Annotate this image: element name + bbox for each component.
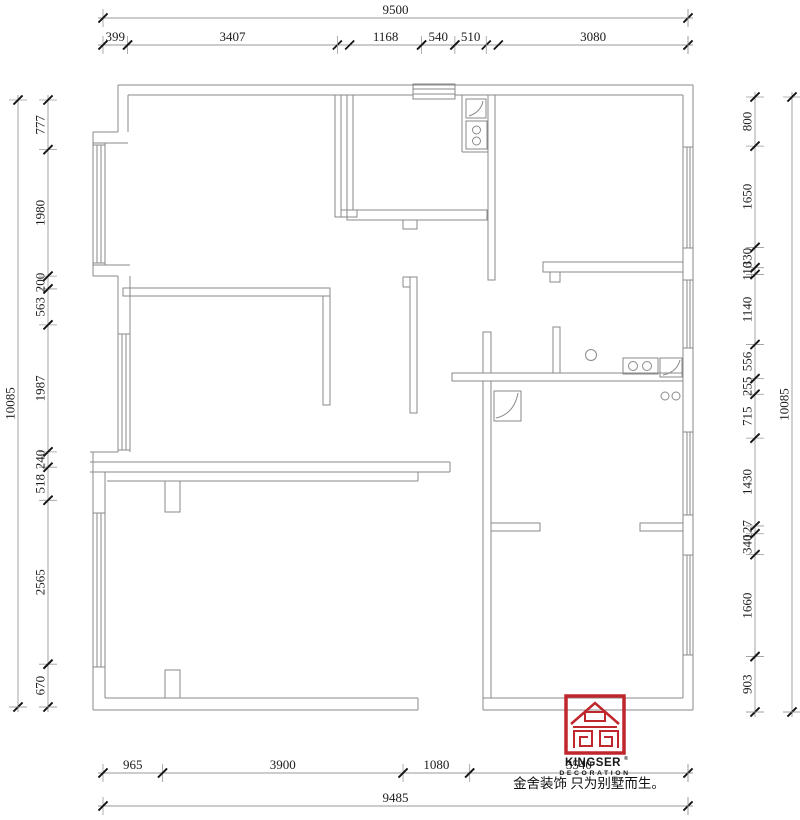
dimension-label: 510 <box>461 29 481 44</box>
floor-drain-icon <box>586 350 597 361</box>
dimension-label: 670 <box>33 676 48 696</box>
dimension-label: 903 <box>740 675 755 695</box>
dimension-label: 965 <box>123 757 143 772</box>
floor-plan-sheet: 9500399340711685405103080100857771980200… <box>0 0 800 820</box>
dimension-label: 9485 <box>383 790 409 805</box>
dimension-label: 240 <box>33 450 48 470</box>
interior-walls <box>90 95 683 698</box>
dimension-label: 1980 <box>33 200 48 226</box>
brand-name: KINGSER <box>565 757 621 769</box>
vent-shaft <box>413 84 455 99</box>
exterior-walls <box>90 84 693 710</box>
dimension-label: 800 <box>740 112 755 132</box>
dimension-label: 1168 <box>373 29 399 44</box>
hob-icon <box>672 392 680 400</box>
dimension-chain-bottom-overall: 9485 <box>98 790 693 815</box>
dimension-chain-top-chain: 399340711685405103080 <box>98 29 693 54</box>
dimension-label: 540 <box>428 29 448 44</box>
kingser-emblem-icon <box>566 696 624 753</box>
dimension-chain-right-overall: 10085 <box>777 92 800 717</box>
dimension-label: 518 <box>33 474 48 494</box>
burner-icon <box>473 137 481 145</box>
dimension-chain-left-overall: 10085 <box>3 95 28 712</box>
dimension-label: 1650 <box>740 184 755 210</box>
dimension-label: 3900 <box>270 757 296 772</box>
bathroom-fixtures <box>494 391 680 421</box>
brand-tagline: 金舍装饰 只为别墅而生。 <box>513 776 665 791</box>
burner-icon <box>473 126 481 134</box>
dimension-label: 9500 <box>383 2 409 17</box>
registered-mark: ® <box>624 755 628 762</box>
dimension-label: 10085 <box>3 387 18 420</box>
dimension-chain-left-chain: 777198020056319872405182565670 <box>33 95 58 712</box>
dimension-label: 556 <box>740 351 755 371</box>
dimension-label: 200 <box>33 273 48 293</box>
dimension-label: 715 <box>740 406 755 426</box>
dimension-label: 3080 <box>580 29 606 44</box>
dimension-label: 255 <box>740 377 755 397</box>
dimension-chain-right-chain: 8001650330110114055625571514301273401660… <box>740 92 765 717</box>
dimension-label: 1430 <box>740 469 755 495</box>
dimension-label: 10085 <box>777 388 792 421</box>
floor-plan-canvas: 9500399340711685405103080100857771980200… <box>0 0 800 820</box>
dimension-label: 340 <box>740 534 755 554</box>
dimension-label: 1140 <box>740 297 755 323</box>
basin-icon <box>629 362 638 371</box>
corner-basin <box>660 358 682 377</box>
dimension-label: 1987 <box>33 375 48 402</box>
dimension-label: 3407 <box>219 29 246 44</box>
windows <box>93 145 693 667</box>
dimension-label: 777 <box>33 115 48 135</box>
dimension-label: 399 <box>106 29 126 44</box>
dimension-label: 1080 <box>423 757 449 772</box>
dimension-label: 563 <box>33 297 48 317</box>
basin-icon <box>643 362 652 371</box>
hob-icon <box>661 392 669 400</box>
dimension-label: 1660 <box>740 593 755 619</box>
dimension-label: 2565 <box>33 569 48 595</box>
dimension-chain-top-overall: 9500 <box>98 2 693 27</box>
